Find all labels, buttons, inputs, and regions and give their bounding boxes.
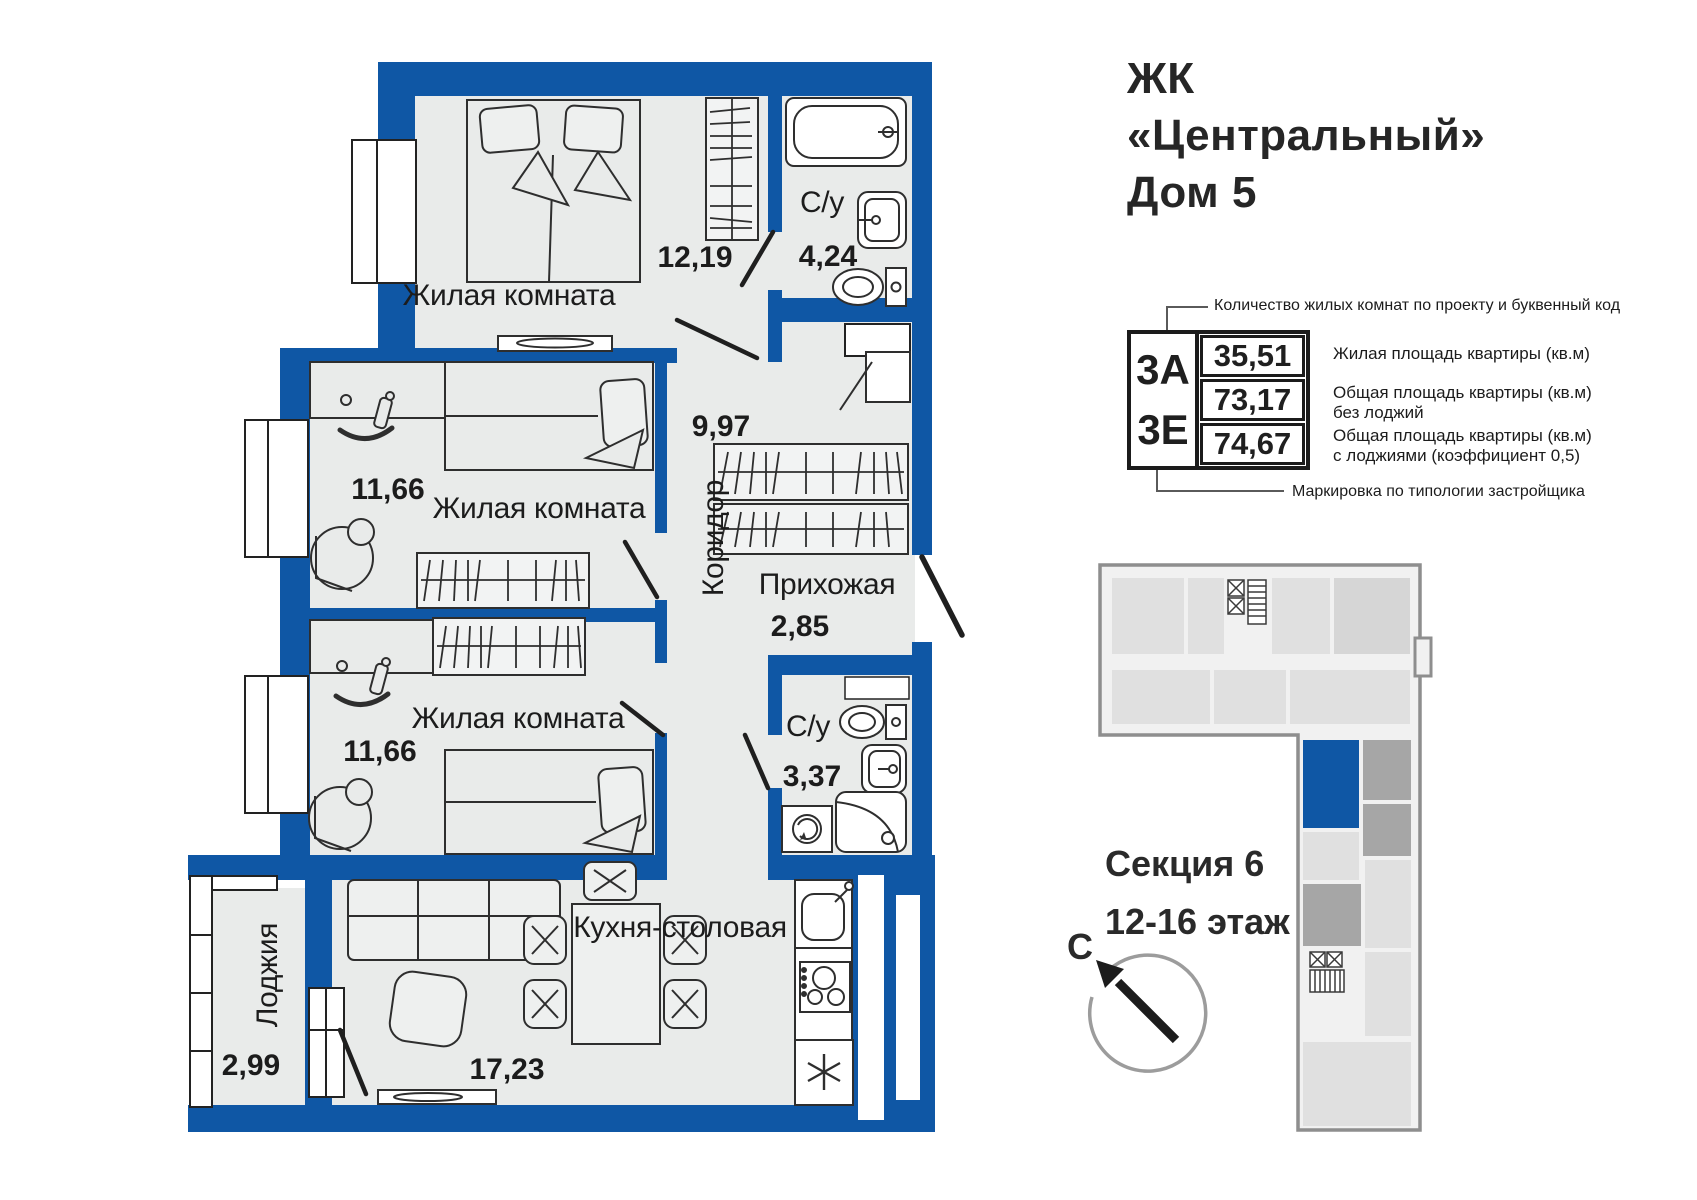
- shower-icon: [836, 792, 906, 852]
- spec-annotation-2: Общая площадь квартиры (кв.м) без лоджий: [1333, 383, 1592, 423]
- desk-icon: [310, 620, 433, 673]
- room-label-kitchen: Кухня-столовая: [573, 913, 787, 943]
- spec-annotation-3: Общая площадь квартиры (кв.м) с лоджиями…: [1333, 426, 1592, 466]
- callout-line: [1156, 470, 1158, 492]
- room-area-bedroom-2: 11,66: [351, 475, 424, 505]
- room-label-bedroom-1: Жилая комната: [403, 281, 616, 311]
- tv-shelf-icon: [498, 336, 612, 351]
- room-area-bathroom-1: 4,24: [799, 242, 857, 272]
- sink-icon: [862, 745, 906, 793]
- spec-code-3a: 3А: [1136, 346, 1190, 394]
- floor-range-label: 12-16 этаж: [1105, 901, 1290, 943]
- double-bed-icon: [467, 100, 640, 282]
- callout-line: [1166, 306, 1168, 332]
- section-label: Секция 6: [1105, 843, 1264, 885]
- spec-living-area: 35,51: [1200, 335, 1305, 377]
- project-title-line2: «Центральный»: [1127, 107, 1485, 164]
- spec-codes: 3А 3Е: [1131, 334, 1199, 466]
- spec-callout-bottom: Маркировка по типологии застройщика: [1292, 483, 1585, 501]
- room-area-kitchen: 17,23: [469, 1055, 544, 1085]
- room-area-hallway: 2,85: [771, 612, 829, 642]
- chair-icon: [524, 916, 566, 964]
- single-bed-icon: [445, 362, 653, 470]
- fridge-icon: [795, 1040, 853, 1105]
- callout-line: [1166, 306, 1208, 308]
- room-label-bathroom-2: С/у: [786, 712, 830, 742]
- room-label-hallway: Прихожая: [759, 570, 896, 600]
- wardrobe-icon: [706, 98, 758, 240]
- project-title-line1: ЖК: [1127, 50, 1485, 107]
- stove-icon: [800, 962, 850, 1012]
- spec-table: 3А 3Е 35,51 73,17 74,67: [1127, 330, 1310, 470]
- single-bed-icon: [445, 750, 653, 854]
- north-arrow-icon: [1090, 955, 1206, 1071]
- spec-code-3e: 3Е: [1137, 406, 1188, 454]
- room-area-corridor: 9,97: [692, 412, 750, 442]
- room-area-bedroom-1: 12,19: [657, 243, 732, 273]
- project-title: ЖК «Центральный» Дом 5: [1127, 50, 1485, 221]
- toilet-icon: [840, 705, 906, 739]
- room-label-bedroom-2: Жилая комната: [433, 494, 646, 524]
- pouf-icon: [387, 969, 468, 1048]
- minimap-highlight-unit: [1303, 740, 1359, 828]
- callout-line: [1156, 490, 1284, 492]
- tv-shelf-icon: [378, 1090, 496, 1104]
- elevator-icon: [1310, 952, 1344, 992]
- project-title-line3: Дом 5: [1127, 164, 1485, 221]
- room-label-bedroom-3: Жилая комната: [412, 704, 625, 734]
- room-label-corridor: Коридор: [699, 480, 729, 596]
- wardrobe-icon: [417, 553, 589, 608]
- spec-annotation-1: Жилая площадь квартиры (кв.м): [1333, 344, 1590, 364]
- north-label: С: [1067, 926, 1093, 968]
- chair-icon: [524, 980, 566, 1028]
- spec-total-area: 73,17: [1200, 379, 1305, 421]
- bathtub-icon: [786, 98, 906, 166]
- floorplan-page: Жилая комната 12,19 С/у 4,24 Жилая комна…: [0, 0, 1697, 1200]
- room-label-loggia: Лоджия: [253, 923, 283, 1028]
- chair-icon: [664, 980, 706, 1028]
- spec-total-area-loggia: 74,67: [1200, 423, 1305, 465]
- hall-wardrobe-icon: [714, 504, 908, 554]
- toilet-icon: [833, 268, 906, 306]
- sink-icon: [858, 192, 906, 248]
- spec-callout-top: Количество жилых комнат по проекту и бук…: [1214, 297, 1620, 315]
- room-label-bathroom-1: С/у: [800, 188, 844, 218]
- hall-wardrobe-icon: [714, 444, 908, 500]
- chair-icon: [584, 862, 636, 900]
- room-area-loggia: 2,99: [222, 1051, 280, 1081]
- room-area-bathroom-2: 3,37: [783, 762, 841, 792]
- spec-values: 35,51 73,17 74,67: [1199, 334, 1306, 466]
- wardrobe-icon: [433, 618, 585, 675]
- washing-machine-icon: [782, 806, 832, 852]
- room-area-bedroom-3: 11,66: [343, 737, 416, 767]
